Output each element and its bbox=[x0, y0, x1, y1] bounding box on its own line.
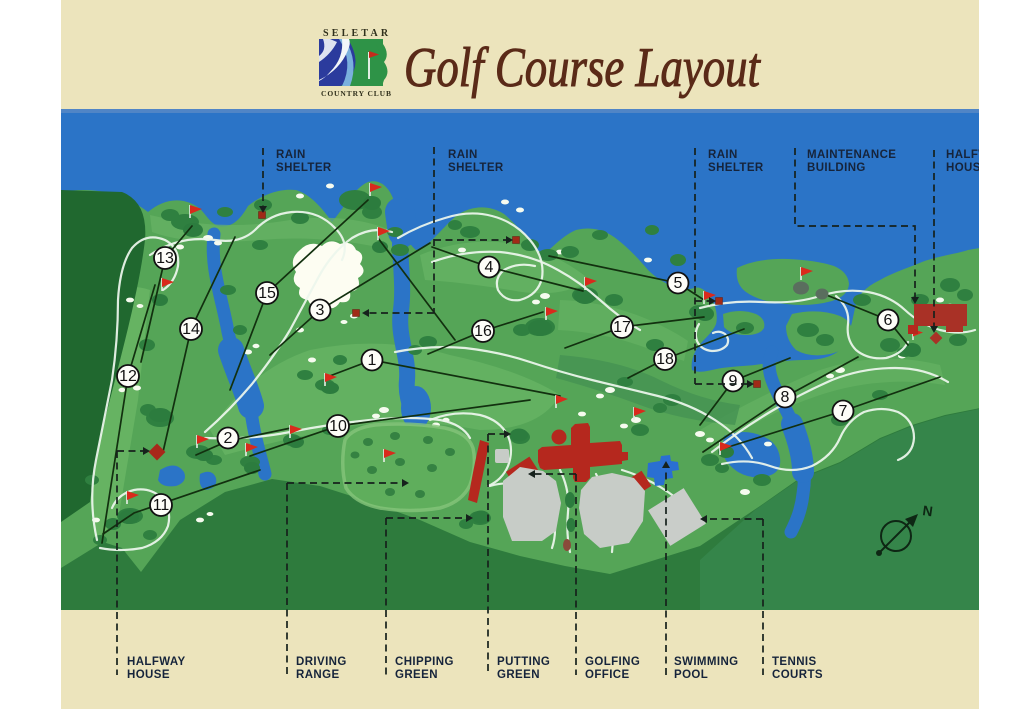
svg-text:6: 6 bbox=[884, 312, 893, 329]
svg-text:POOL: POOL bbox=[674, 669, 708, 681]
svg-text:GREEN: GREEN bbox=[395, 669, 438, 681]
svg-text:SHELTER: SHELTER bbox=[448, 162, 504, 174]
svg-text:PUTTING: PUTTING bbox=[497, 656, 550, 668]
svg-text:GOLFING: GOLFING bbox=[585, 656, 640, 668]
svg-text:10: 10 bbox=[329, 418, 347, 435]
svg-text:HALFWAY: HALFWAY bbox=[127, 656, 186, 668]
svg-text:7: 7 bbox=[839, 403, 848, 420]
svg-text:BUILDING: BUILDING bbox=[807, 162, 866, 174]
svg-text:DRIVING: DRIVING bbox=[296, 656, 347, 668]
svg-text:GREEN: GREEN bbox=[497, 669, 540, 681]
svg-text:SHELTER: SHELTER bbox=[276, 162, 332, 174]
svg-text:Golf Course Layout: Golf Course Layout bbox=[404, 37, 761, 99]
svg-text:RAIN: RAIN bbox=[276, 149, 306, 161]
svg-text:4: 4 bbox=[485, 259, 494, 276]
svg-text:15: 15 bbox=[258, 285, 276, 302]
svg-text:1: 1 bbox=[368, 352, 377, 369]
svg-text:SHELTER: SHELTER bbox=[708, 162, 764, 174]
svg-text:RAIN: RAIN bbox=[708, 149, 738, 161]
svg-text:5: 5 bbox=[674, 275, 683, 292]
svg-text:OFFICE: OFFICE bbox=[585, 669, 630, 681]
svg-text:11: 11 bbox=[153, 497, 170, 514]
svg-text:16: 16 bbox=[474, 323, 492, 340]
svg-text:SWIMMING: SWIMMING bbox=[674, 656, 739, 668]
svg-text:TENNIS: TENNIS bbox=[772, 656, 817, 668]
svg-text:HALFWAY: HALFWAY bbox=[946, 149, 1005, 161]
svg-text:SELETAR: SELETAR bbox=[323, 28, 391, 39]
svg-text:13: 13 bbox=[156, 250, 174, 267]
svg-text:CHIPPING: CHIPPING bbox=[395, 656, 454, 668]
svg-text:RAIN: RAIN bbox=[448, 149, 478, 161]
svg-text:HOUSE: HOUSE bbox=[946, 162, 989, 174]
svg-text:14: 14 bbox=[182, 321, 200, 338]
svg-text:2: 2 bbox=[224, 430, 233, 447]
svg-text:17: 17 bbox=[613, 319, 631, 336]
svg-text:COUNTRY CLUB: COUNTRY CLUB bbox=[321, 89, 392, 98]
svg-text:12: 12 bbox=[119, 368, 137, 385]
svg-text:9: 9 bbox=[729, 373, 738, 390]
svg-text:COURTS: COURTS bbox=[772, 669, 823, 681]
svg-text:MAINTENANCE: MAINTENANCE bbox=[807, 149, 896, 161]
svg-text:3: 3 bbox=[316, 302, 325, 319]
svg-text:HOUSE: HOUSE bbox=[127, 669, 170, 681]
svg-text:8: 8 bbox=[781, 389, 790, 406]
svg-text:RANGE: RANGE bbox=[296, 669, 340, 681]
svg-text:18: 18 bbox=[656, 351, 674, 368]
